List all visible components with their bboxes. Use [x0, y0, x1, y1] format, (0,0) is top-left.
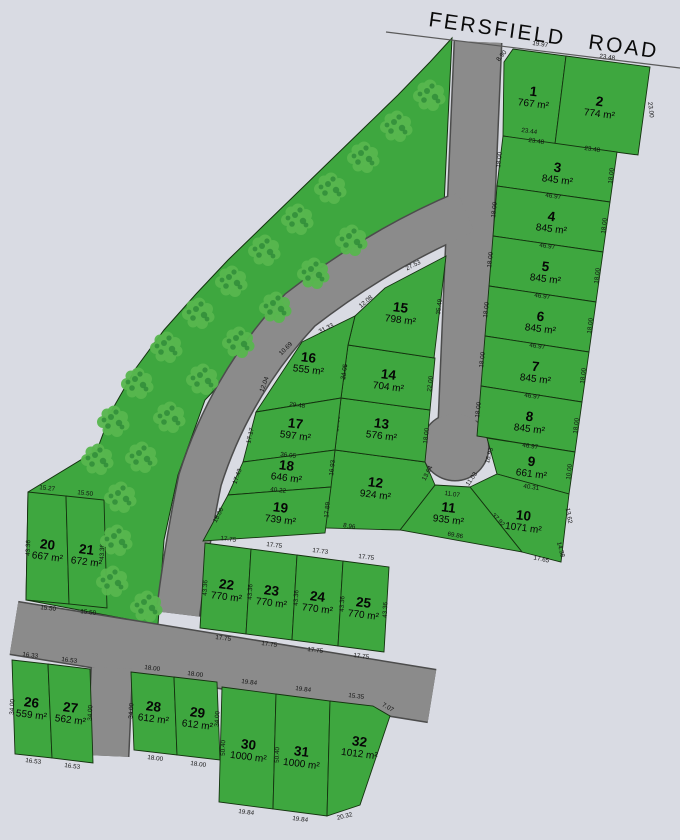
dimension-label: 17.89 [323, 501, 331, 518]
lot-27[interactable]: 27562 m²16.5334.0016.53 [48, 656, 94, 771]
dimension-label: 43.36 [293, 589, 301, 606]
lot-31[interactable]: 311000 m²19.8450.4019.84 [273, 685, 330, 824]
lot-1[interactable]: 1767 m²19.978.9023.44 [495, 40, 566, 144]
lot-2[interactable]: 2774 m²23.4823.00 [555, 53, 655, 155]
dimension-label: 50.40 [274, 746, 282, 762]
lot-30[interactable]: 301000 m²19.8450.4019.84 [219, 678, 276, 817]
dimension-label: 43.36 [25, 539, 33, 555]
road-stub [108, 668, 112, 756]
dimension-label: 34.00 [213, 710, 221, 727]
dimension-label: 34.00 [127, 702, 135, 719]
dimension-label: 34.00 [9, 698, 17, 715]
dimension-label: 43.36 [339, 595, 347, 612]
lot-25[interactable]: 25770 m²17.7543.3617.7543.36 [338, 553, 389, 661]
lot-29[interactable]: 29612 m²18.0034.0018.00 [174, 670, 222, 769]
plat-map-stage: 1767 m²19.978.9023.442774 m²23.4823.0038… [0, 0, 680, 840]
lot-21[interactable]: 21672 m²15.5043.3615.50 [66, 489, 107, 617]
lot-23[interactable]: 23770 m²17.7543.3617.75 [246, 541, 297, 649]
dimension-label: 50.40 [220, 739, 228, 755]
plat-map-svg: 1767 m²19.978.9023.442774 m²23.4823.0038… [0, 0, 680, 840]
lot-20[interactable]: 20667 m²15.2743.3615.50 [25, 484, 69, 613]
dimension-label: 43.36 [247, 583, 255, 600]
dimension-label: 34.00 [87, 704, 95, 721]
lot-28[interactable]: 28612 m²18.0034.0018.00 [127, 664, 177, 763]
dimension-label: 43.36 [382, 601, 390, 618]
lot-24[interactable]: 24770 m²17.7343.3617.75 [292, 547, 343, 655]
lot-22[interactable]: 22770 m²17.7543.3617.75 [200, 535, 251, 643]
subdivision-plan: 1767 m²19.978.9023.442774 m²23.4823.0038… [0, 0, 680, 840]
dimension-label: 43.36 [202, 579, 210, 596]
lot-26[interactable]: 26559 m²16.3334.0016.53 [9, 651, 52, 766]
